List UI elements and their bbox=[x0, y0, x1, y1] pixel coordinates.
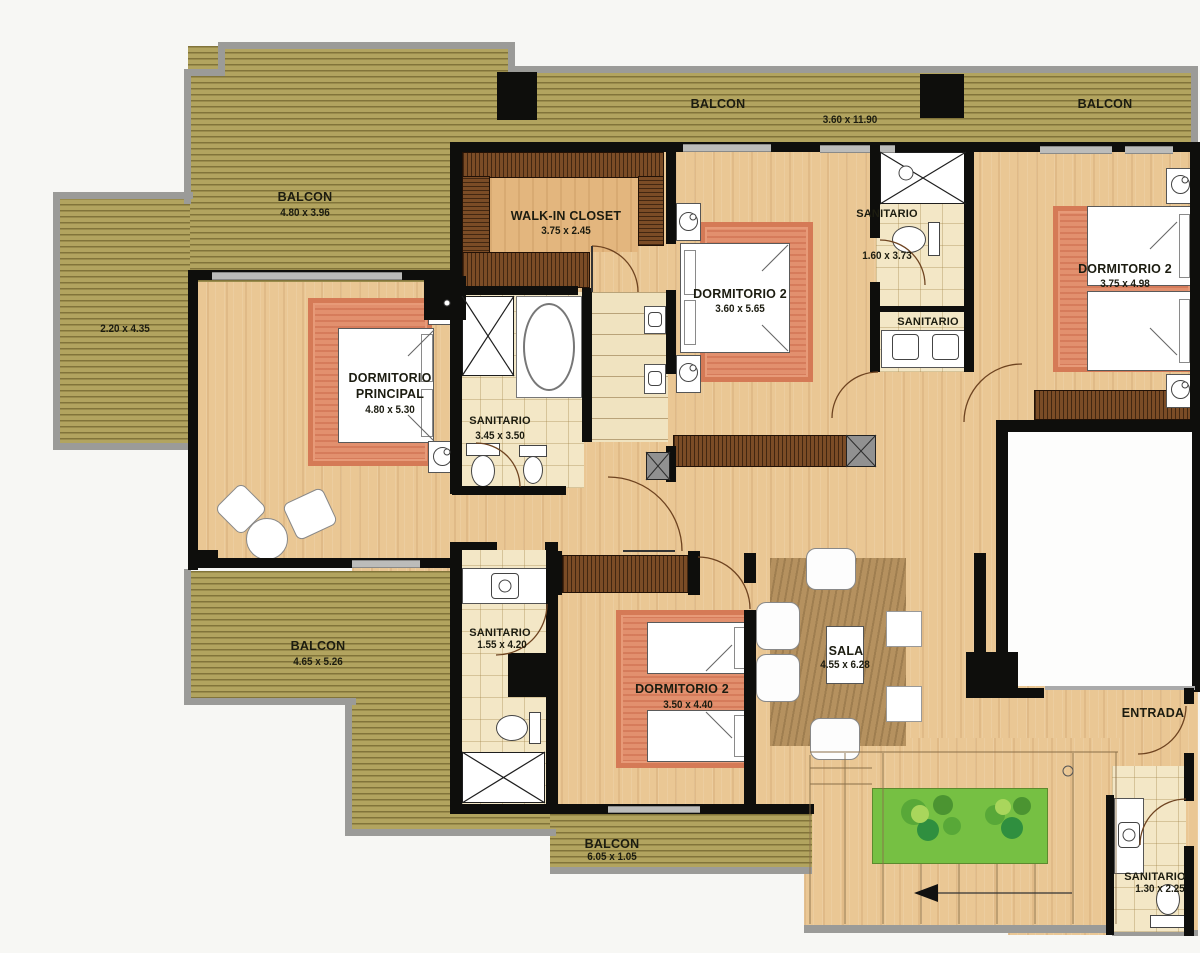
wall bbox=[1008, 688, 1044, 698]
label-dormitorio2-bottom: DORMITORIO 2 bbox=[602, 683, 762, 697]
balcony-bottom-left-a bbox=[188, 571, 352, 703]
label-dormitorio2-top: DORMITORIO 2 bbox=[660, 288, 820, 302]
column-block bbox=[424, 276, 466, 320]
label-dormitorio-principal-1: DORMITORIO bbox=[310, 372, 470, 386]
label-sanitario-mid: SANITARIO bbox=[883, 316, 973, 328]
lamp-icon bbox=[1171, 175, 1190, 194]
dims-sala: 4.55 x 6.28 bbox=[773, 660, 917, 672]
wall bbox=[666, 290, 676, 374]
wall bbox=[1184, 688, 1194, 704]
wall-cabinet-inner bbox=[648, 371, 662, 386]
toilet-tank bbox=[1150, 915, 1186, 928]
outline-topstrip-right bbox=[1191, 66, 1198, 147]
planter bbox=[872, 788, 1048, 864]
bidet-icon bbox=[523, 456, 543, 484]
dining-chair bbox=[810, 718, 860, 760]
wall bbox=[744, 553, 756, 583]
outline-balcony-left-top bbox=[53, 192, 193, 199]
sink-icon bbox=[932, 334, 959, 360]
wall bbox=[188, 270, 198, 570]
outline-stairs-bottom bbox=[804, 925, 1120, 933]
outline-top bbox=[218, 42, 514, 49]
wall bbox=[974, 553, 986, 657]
shower-icon bbox=[880, 152, 966, 204]
railing-hall-center bbox=[673, 435, 848, 467]
label-walk-in-closet: WALK-IN CLOSET bbox=[486, 210, 646, 224]
window bbox=[608, 806, 700, 813]
dims-sanitario-principal: 3.45 x 3.50 bbox=[437, 431, 563, 443]
wall bbox=[582, 288, 592, 442]
dims-sanitario-entrada: 1.30 x 2.25 bbox=[1120, 884, 1200, 896]
open-void bbox=[1008, 432, 1192, 686]
outline-bottomleft-bottom bbox=[184, 698, 356, 705]
window bbox=[212, 272, 402, 280]
window bbox=[683, 144, 771, 152]
toilet-icon bbox=[496, 715, 528, 741]
bathtub-icon bbox=[523, 303, 575, 391]
label-dormitorio2-right: DORMITORIO 2 bbox=[1045, 263, 1200, 277]
dims-walk-in-closet: 3.75 x 2.45 bbox=[494, 226, 638, 238]
outline-balcony-left-bottom bbox=[53, 443, 190, 450]
dims-balcony-left: 2.20 x 4.35 bbox=[67, 324, 184, 336]
shrub-icon bbox=[933, 795, 953, 815]
wall bbox=[452, 486, 566, 495]
column-block bbox=[497, 72, 537, 120]
outline-left-upper bbox=[184, 69, 191, 204]
outline-balcony-left-edge bbox=[53, 192, 60, 450]
wall bbox=[545, 542, 554, 550]
wall bbox=[1106, 795, 1114, 935]
dining-chair bbox=[806, 548, 856, 590]
column-x bbox=[646, 452, 670, 480]
wall-cabinet-inner bbox=[648, 312, 662, 327]
dims-dormitorio2-right: 3.75 x 4.98 bbox=[1053, 279, 1197, 291]
window bbox=[820, 145, 895, 153]
toilet-tank bbox=[529, 712, 541, 744]
wall bbox=[996, 420, 1196, 432]
round-table bbox=[246, 518, 288, 560]
label-sanitario-entrada: SANITARIO bbox=[1110, 871, 1200, 883]
wall bbox=[870, 142, 880, 238]
window bbox=[1125, 146, 1173, 154]
window bbox=[1040, 146, 1112, 154]
label-balcony-top-left: BALCON bbox=[225, 191, 385, 205]
window bbox=[352, 560, 420, 568]
shrub-icon bbox=[943, 817, 961, 835]
label-dormitorio-principal-2: PRINCIPAL bbox=[310, 388, 470, 402]
wall bbox=[964, 142, 974, 312]
wall bbox=[456, 286, 578, 295]
entrada-threshold bbox=[1045, 686, 1195, 690]
dims-dormitorio2-bottom: 3.50 x 4.40 bbox=[616, 700, 760, 712]
label-sanitario-top: SANITARIO bbox=[842, 208, 932, 220]
dims-balcony-top: 3.60 x 11.90 bbox=[778, 115, 922, 127]
wall bbox=[1192, 428, 1200, 692]
column-x bbox=[846, 435, 876, 467]
wall bbox=[870, 306, 974, 312]
outline-bottomleft-edge bbox=[184, 569, 191, 705]
outline-bottomstrip-bottom bbox=[550, 867, 812, 874]
label-sala: SALA bbox=[766, 645, 926, 659]
wall bbox=[996, 432, 1008, 674]
shrub-icon bbox=[1001, 817, 1023, 839]
sink-icon bbox=[491, 573, 519, 599]
lamp-icon bbox=[679, 363, 698, 382]
dims-sanitario-top: 1.60 x 3.73 bbox=[847, 251, 928, 263]
wall bbox=[688, 551, 700, 595]
shower-icon bbox=[462, 752, 545, 803]
closet-frame-bottom bbox=[462, 252, 590, 288]
wall bbox=[450, 542, 462, 814]
shrub-icon bbox=[1013, 797, 1031, 815]
dims-balcony-bottom: 6.05 x 1.05 bbox=[540, 852, 684, 864]
dims-sanitario-bottom: 1.55 x 4.20 bbox=[439, 640, 565, 652]
label-sanitario-principal: SANITARIO bbox=[430, 415, 570, 427]
column-block bbox=[920, 74, 964, 118]
shrub-icon bbox=[911, 805, 929, 823]
label-sanitario-bottom: SANITARIO bbox=[430, 627, 570, 639]
dims-balcony-top-left: 4.80 x 3.96 bbox=[233, 208, 377, 220]
label-balcony-top-right: BALCON bbox=[1025, 98, 1185, 112]
side-table bbox=[886, 686, 922, 722]
wall bbox=[666, 142, 676, 244]
shower-icon bbox=[462, 296, 514, 376]
toilet-icon bbox=[892, 226, 926, 253]
wall bbox=[1184, 753, 1194, 801]
pillow bbox=[1179, 299, 1190, 363]
outline-topstrip-top bbox=[508, 66, 1198, 73]
lamp-icon bbox=[1171, 380, 1190, 399]
toilet-icon bbox=[471, 455, 495, 487]
wall bbox=[452, 542, 497, 550]
floor-plan-canvas: BALCON 4.80 x 3.96 BALCON 3.60 x 11.90 B… bbox=[0, 0, 1200, 953]
outline-bottom-b-left bbox=[345, 700, 352, 836]
sink-icon bbox=[1118, 822, 1140, 848]
label-entrada: ENTRADA bbox=[1083, 707, 1200, 721]
railing-hall-bottom bbox=[562, 555, 690, 593]
closet-frame-top bbox=[462, 152, 664, 178]
label-balcony-bottom: BALCON bbox=[532, 838, 692, 852]
shrub-icon bbox=[995, 799, 1011, 815]
dims-dormitorio2-top: 3.60 x 5.65 bbox=[668, 304, 812, 316]
dining-chair bbox=[756, 602, 800, 650]
sink-icon bbox=[892, 334, 919, 360]
outline-bottom-b-bottom bbox=[345, 829, 556, 836]
column-block bbox=[188, 550, 218, 568]
label-balcony-bottom-left: BALCON bbox=[238, 640, 398, 654]
wall bbox=[870, 310, 880, 372]
balcony-left bbox=[60, 198, 190, 445]
lamp-icon bbox=[679, 212, 698, 231]
side-table bbox=[886, 611, 922, 647]
wall bbox=[550, 551, 562, 595]
dims-balcony-bottom-left: 4.65 x 5.26 bbox=[246, 657, 390, 669]
toilet-tank bbox=[928, 222, 940, 256]
dark-cabinet bbox=[508, 653, 550, 697]
label-balcony-top: BALCON bbox=[638, 98, 798, 112]
